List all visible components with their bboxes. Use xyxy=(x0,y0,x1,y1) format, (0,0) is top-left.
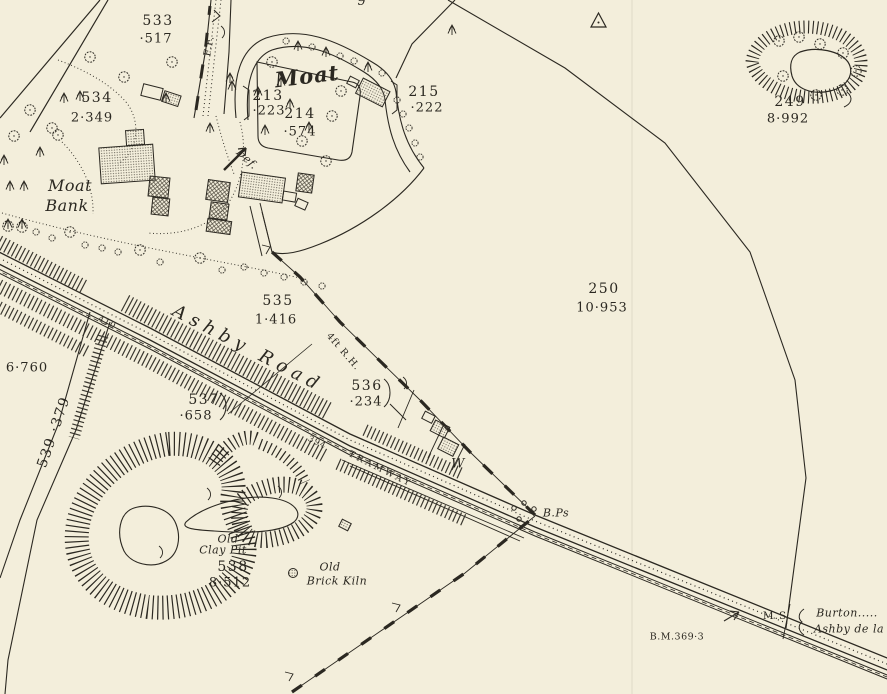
shed xyxy=(339,519,352,531)
parcel-area-538: 8·512 xyxy=(209,577,251,590)
conifer-tree-icon xyxy=(6,181,14,191)
pit-249 xyxy=(752,27,861,107)
parcel-area-213: ·223 xyxy=(253,105,286,118)
parcel-number-250: 250 xyxy=(588,282,619,296)
moat-bank-name-line1: Moat xyxy=(48,178,92,194)
brick-kiln-symbol xyxy=(289,569,298,578)
parcel-area-250: 10·953 xyxy=(576,302,628,315)
moat-parcel-boundary xyxy=(272,168,424,254)
farm-lane xyxy=(250,203,272,256)
clipped-parcel-number: 9 xyxy=(357,0,367,8)
parcel-number-536: 536 xyxy=(351,379,382,393)
clay-pit-name-line2: Clay Pit xyxy=(199,545,247,556)
parcel-number-534: 534 xyxy=(81,91,112,105)
well-label: W xyxy=(451,458,465,471)
map-linework xyxy=(0,0,887,694)
destination-line2: Ashby de la xyxy=(814,624,884,635)
road-north-edge xyxy=(0,250,887,660)
outbuilding xyxy=(356,78,390,107)
tramway-track xyxy=(0,267,887,681)
hedge-line xyxy=(262,212,535,515)
footpath-lane xyxy=(194,0,231,118)
parcel-number-537: 537 xyxy=(188,393,219,407)
parcel-area-215: ·222 xyxy=(411,102,444,115)
bench-mark-label: B.M.369·3 xyxy=(650,632,704,642)
brick-kiln-name-line1: Old xyxy=(319,562,340,573)
parcel-number-538: 538 xyxy=(217,560,248,574)
parcel-area-533: ·517 xyxy=(140,33,173,46)
trig-point-icon xyxy=(591,13,606,27)
glasshouse xyxy=(209,202,229,220)
broad-arrow-icon xyxy=(724,611,739,621)
ashby-road xyxy=(0,250,887,672)
pit-floor xyxy=(120,506,179,565)
parish-boundary-bars xyxy=(292,516,535,692)
parcel-area-6760: 6·760 xyxy=(6,362,48,375)
glasshouse xyxy=(206,218,232,234)
mile-stone-label: M.S xyxy=(763,611,787,622)
brick-kiln-name-line2: Brick Kiln xyxy=(307,576,368,587)
parcel-area-537: ·658 xyxy=(180,410,213,423)
paper-crease xyxy=(631,0,633,694)
moat-bank-house xyxy=(99,144,155,184)
glasshouse xyxy=(206,180,231,203)
map-canvas: 533 ·517 534 2·349 Moat Moat Bank 213 ·2… xyxy=(0,0,887,694)
farm-house xyxy=(238,172,285,203)
glasshouse xyxy=(151,197,170,216)
shed xyxy=(438,437,459,456)
glasshouse xyxy=(148,176,170,198)
label-braces xyxy=(220,81,804,635)
moat-bank-name-line2: Bank xyxy=(45,198,88,214)
parcel-number-214: 214 xyxy=(284,107,315,121)
boundary-posts-label: B.Ps xyxy=(543,508,569,519)
parcel-number-535: 535 xyxy=(262,294,293,308)
parcel-number-533: 533 xyxy=(142,14,173,28)
parcel-number-213: 213 xyxy=(252,89,283,103)
parcel-area-535: 1·416 xyxy=(255,314,297,327)
destination-line1: Burton..... xyxy=(816,608,878,619)
parcel-area-214: ·574 xyxy=(284,126,317,139)
parcel-area-534: 2·349 xyxy=(71,112,113,125)
shed xyxy=(430,420,450,438)
parcel-area-536: ·234 xyxy=(350,396,383,409)
pit-floor xyxy=(791,49,851,92)
bush-icon xyxy=(33,229,39,235)
parcel-number-249: 249 xyxy=(774,95,805,109)
parcel-number-215: 215 xyxy=(408,85,439,99)
parcel-area-249: 8·992 xyxy=(767,113,809,126)
old-clay-pit xyxy=(77,438,315,608)
glasshouse xyxy=(296,173,314,193)
